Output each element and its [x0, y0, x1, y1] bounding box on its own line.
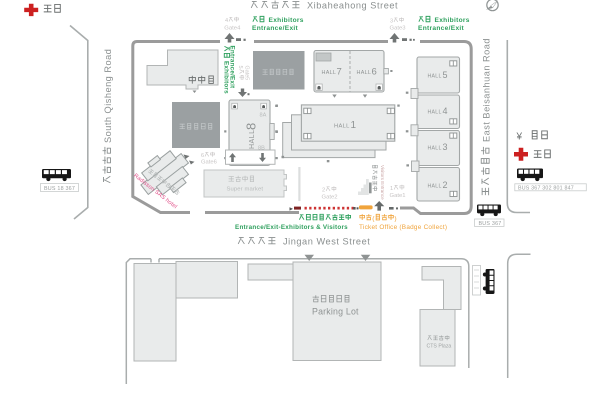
svg-text:): )	[394, 215, 396, 222]
svg-text:6: 6	[372, 67, 377, 78]
svg-text:HALL: HALL	[322, 70, 337, 76]
svg-text:2: 2	[443, 180, 448, 190]
svg-text:Super market: Super market	[227, 186, 264, 192]
svg-text:6: 6	[201, 153, 204, 159]
svg-text:Visitors Entrance: Visitors Entrance	[380, 165, 385, 200]
svg-text:HALL: HALL	[428, 74, 442, 80]
svg-text:Gate4: Gate4	[224, 25, 241, 31]
svg-text:5: 5	[237, 66, 243, 69]
svg-text:Xibaheahong Street: Xibaheahong Street	[307, 1, 398, 11]
svg-text:Ticket Office (Badge Collect): Ticket Office (Badge Collect)	[359, 224, 447, 231]
svg-text:BUS 367: BUS 367	[479, 221, 502, 227]
svg-text:HALL: HALL	[357, 70, 372, 76]
svg-text:HALL: HALL	[249, 129, 256, 149]
svg-text:Gate5: Gate5	[243, 66, 249, 81]
svg-text:5: 5	[443, 70, 448, 80]
svg-text:3: 3	[390, 19, 393, 25]
svg-text:CTS Plaza: CTS Plaza	[427, 344, 452, 350]
svg-text:8A: 8A	[260, 113, 267, 119]
svg-text:4: 4	[225, 18, 228, 24]
svg-text:8: 8	[244, 123, 259, 130]
svg-text:1: 1	[390, 186, 393, 192]
svg-text:HALL: HALL	[334, 124, 350, 130]
svg-text:4: 4	[443, 106, 448, 116]
svg-text:Entrance/Exit: Entrance/Exit	[418, 25, 465, 32]
svg-text:Exhibitors: Exhibitors	[222, 61, 229, 94]
svg-text:Parking Lot: Parking Lot	[312, 307, 359, 317]
svg-text:Entrance/Exit: Entrance/Exit	[252, 25, 299, 32]
svg-text:3: 3	[443, 142, 448, 152]
svg-text:Gate3: Gate3	[390, 25, 407, 31]
svg-text:HALL: HALL	[428, 146, 442, 152]
svg-text:Gate6: Gate6	[201, 160, 217, 166]
svg-text:Entrance/Exit: Entrance/Exit	[229, 46, 236, 90]
svg-text:Jingan West Street: Jingan West Street	[283, 237, 370, 247]
svg-text:2: 2	[322, 188, 325, 194]
svg-text:East Beisanhuan Road: East Beisanhuan Road	[482, 38, 492, 142]
svg-text:BUS 18 367: BUS 18 367	[44, 186, 75, 192]
svg-text:¥: ¥	[516, 132, 523, 143]
svg-text:Entrance/Exit-Exhibitors & Vis: Entrance/Exit-Exhibitors & Visitors	[235, 224, 348, 231]
svg-text:1: 1	[351, 120, 357, 131]
svg-text:7: 7	[337, 67, 342, 78]
svg-text:Exhibitors: Exhibitors	[269, 17, 304, 24]
svg-text:HALL: HALL	[428, 110, 442, 116]
svg-text:Gate1: Gate1	[390, 193, 406, 199]
svg-text:South Qisheng Road: South Qisheng Road	[103, 49, 113, 143]
svg-text:Gate2: Gate2	[322, 194, 338, 200]
svg-text:HALL: HALL	[428, 184, 442, 190]
svg-text:BUS 367 302 801 847: BUS 367 302 801 847	[518, 185, 574, 191]
svg-text:Exhibitors: Exhibitors	[435, 17, 470, 24]
